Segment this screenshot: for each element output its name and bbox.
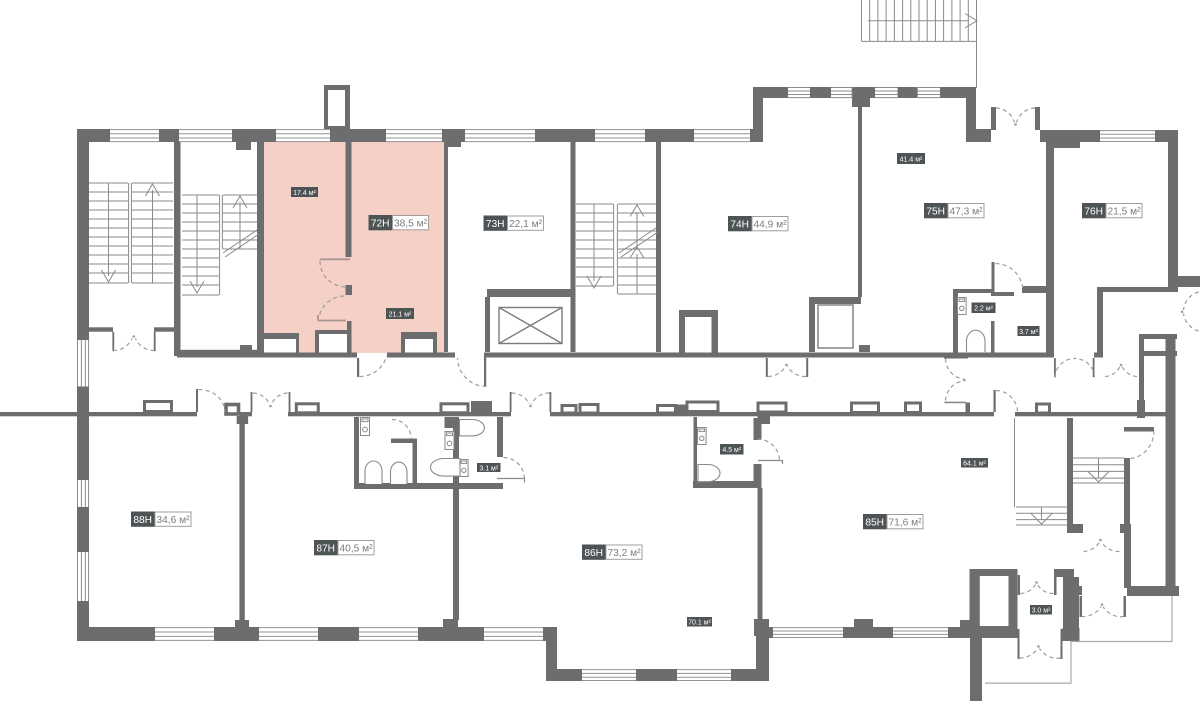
svg-text:4.5 м²: 4.5 м²	[722, 447, 741, 454]
svg-text:3.7 м²: 3.7 м²	[1019, 329, 1038, 336]
svg-text:17.4 м²: 17.4 м²	[293, 190, 316, 197]
svg-text:70.1 м²: 70.1 м²	[688, 620, 711, 627]
svg-text:2.2 м²: 2.2 м²	[974, 306, 993, 313]
svg-text:47,3 м²: 47,3 м²	[949, 207, 983, 218]
svg-text:3.0 м²: 3.0 м²	[1032, 608, 1051, 615]
svg-text:88H: 88H	[133, 515, 152, 526]
svg-text:72H: 72H	[371, 219, 390, 230]
svg-text:73H: 73H	[486, 219, 505, 230]
svg-text:21,5 м²: 21,5 м²	[1107, 207, 1141, 218]
svg-text:74H: 74H	[730, 220, 749, 231]
svg-text:71,6 м²: 71,6 м²	[888, 518, 922, 529]
svg-text:38,5 м²: 38,5 м²	[394, 219, 428, 230]
svg-text:86H: 86H	[584, 548, 603, 559]
svg-text:21.1 м²: 21.1 м²	[389, 311, 412, 318]
svg-text:87H: 87H	[316, 544, 335, 555]
svg-text:44,9 м²: 44,9 м²	[753, 220, 787, 231]
svg-text:73,2 м²: 73,2 м²	[607, 548, 641, 559]
svg-text:75H: 75H	[926, 207, 945, 218]
svg-text:64.1 м²: 64.1 м²	[963, 461, 986, 468]
svg-text:40,5 м²: 40,5 м²	[339, 544, 373, 555]
svg-text:41.4 м²: 41.4 м²	[900, 156, 923, 163]
svg-text:85H: 85H	[865, 518, 884, 529]
svg-text:3.1 м²: 3.1 м²	[479, 465, 498, 472]
svg-text:34,6 м²: 34,6 м²	[156, 515, 190, 526]
svg-text:22,1 м²: 22,1 м²	[509, 219, 543, 230]
svg-text:76H: 76H	[1084, 207, 1103, 218]
